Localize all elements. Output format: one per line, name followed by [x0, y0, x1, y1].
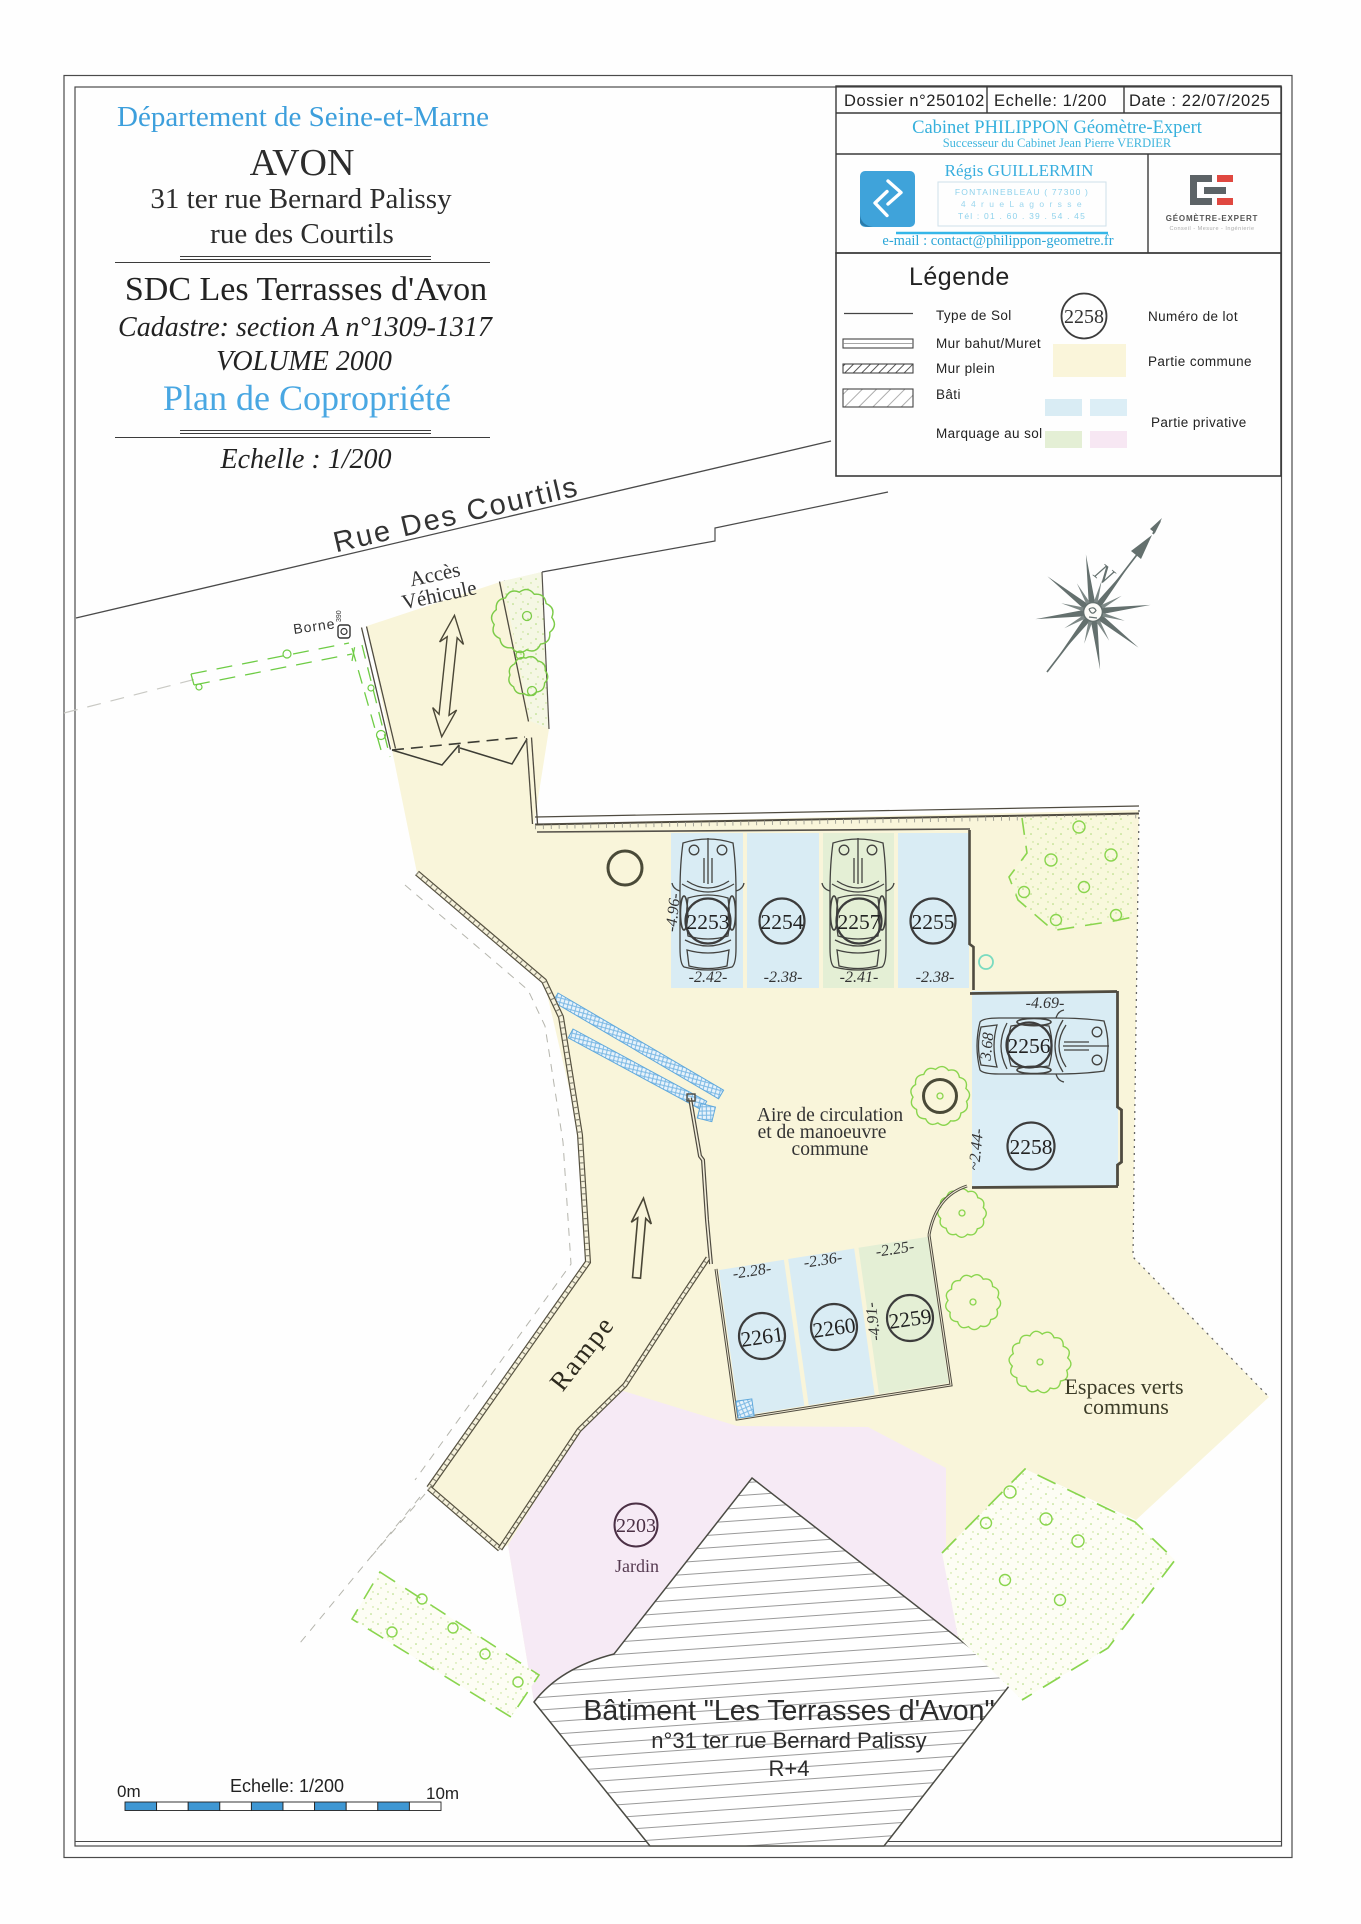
svg-text:Tél : 01 . 60 . 39 . 54 . 45: Tél : 01 . 60 . 39 . 54 . 45: [958, 211, 1086, 221]
svg-text:2254: 2254: [761, 910, 804, 934]
svg-text:commune: commune: [792, 1139, 869, 1160]
svg-text:FONTAINEBLEAU ( 77300 ): FONTAINEBLEAU ( 77300 ): [955, 187, 1089, 197]
svg-text:AVON: AVON: [250, 142, 355, 184]
svg-text:Echelle: 1/200: Echelle: 1/200: [994, 92, 1107, 110]
svg-text:Cabinet PHILIPPON Géomètre-Exp: Cabinet PHILIPPON Géomètre-Expert: [912, 118, 1203, 138]
svg-text:n°31 ter rue Bernard Palissy: n°31 ter rue Bernard Palissy: [651, 1728, 926, 1753]
svg-text:2203: 2203: [616, 1515, 656, 1537]
svg-text:Cadastre: section A n°1309-131: Cadastre: section A n°1309-1317: [118, 312, 493, 343]
svg-text:Mur plein: Mur plein: [936, 361, 995, 376]
svg-text:Plan de Copropriété: Plan de Copropriété: [163, 378, 451, 418]
svg-text:0m: 0m: [117, 1782, 141, 1801]
svg-text:Partie privative: Partie privative: [1151, 415, 1247, 430]
svg-text:2257: 2257: [838, 910, 881, 934]
svg-text:390: 390: [336, 610, 343, 622]
svg-text:2258: 2258: [1064, 306, 1104, 328]
svg-text:Date : 22/07/2025: Date : 22/07/2025: [1129, 92, 1270, 110]
svg-text:Echelle : 1/200: Echelle : 1/200: [219, 444, 391, 475]
svg-text:-4.69-: -4.69-: [1026, 995, 1065, 1012]
svg-text:-2.41-: -2.41-: [840, 969, 879, 986]
svg-text:rue des Courtils: rue des Courtils: [210, 218, 394, 250]
svg-text:3.68: 3.68: [978, 1032, 998, 1063]
svg-text:-2.38-: -2.38-: [916, 969, 955, 986]
svg-text:Type de Sol: Type de Sol: [936, 308, 1012, 323]
svg-text:Mur bahut/Muret: Mur bahut/Muret: [936, 336, 1041, 351]
svg-text:Bâtiment "Les Terrasses d'Avon: Bâtiment "Les Terrasses d'Avon": [583, 1695, 994, 1727]
svg-text:4 4 r u e L a g o r s s e: 4 4 r u e L a g o r s s e: [961, 199, 1083, 209]
svg-text:2255: 2255: [912, 910, 955, 934]
svg-text:Jardin: Jardin: [615, 1556, 659, 1576]
svg-text:Partie commune: Partie commune: [1148, 354, 1252, 369]
svg-text:Conseil - Mesure - Ingénierie: Conseil - Mesure - Ingénierie: [1169, 226, 1254, 232]
svg-text:-2.38-: -2.38-: [764, 969, 803, 986]
svg-text:e-mail : contact@philippon-geo: e-mail : contact@philippon-geometre.fr: [882, 233, 1113, 249]
svg-text:Marquage au sol: Marquage au sol: [936, 426, 1043, 441]
svg-text:2256: 2256: [1008, 1034, 1051, 1058]
svg-text:10m: 10m: [426, 1784, 459, 1803]
svg-text:GÉOMÈTRE-EXPERT: GÉOMÈTRE-EXPERT: [1166, 214, 1258, 223]
svg-text:-2.42-: -2.42-: [689, 969, 728, 986]
svg-text:Département de Seine-et-Marne: Département de Seine-et-Marne: [117, 101, 489, 133]
svg-text:2253: 2253: [687, 910, 730, 934]
svg-text:Bâti: Bâti: [936, 387, 961, 402]
svg-text:Numéro de lot: Numéro de lot: [1148, 309, 1238, 324]
svg-text:2258: 2258: [1010, 1135, 1053, 1159]
svg-text:31 ter rue Bernard Palissy: 31 ter rue Bernard Palissy: [150, 183, 452, 215]
svg-text:Echelle: 1/200: Echelle: 1/200: [230, 1776, 344, 1796]
svg-text:Régis GUILLERMIN: Régis GUILLERMIN: [945, 161, 1094, 180]
svg-text:Successeur du Cabinet Jean Pie: Successeur du Cabinet Jean Pierre VERDIE…: [943, 136, 1172, 150]
svg-text:R+4: R+4: [769, 1756, 810, 1781]
svg-text:SDC Les Terrasses d'Avon: SDC Les Terrasses d'Avon: [125, 271, 487, 308]
svg-text:communs: communs: [1083, 1394, 1169, 1419]
svg-text:Dossier n°250102: Dossier n°250102: [844, 92, 985, 110]
svg-text:VOLUME 2000: VOLUME 2000: [216, 346, 392, 377]
svg-text:Légende: Légende: [909, 263, 1010, 291]
